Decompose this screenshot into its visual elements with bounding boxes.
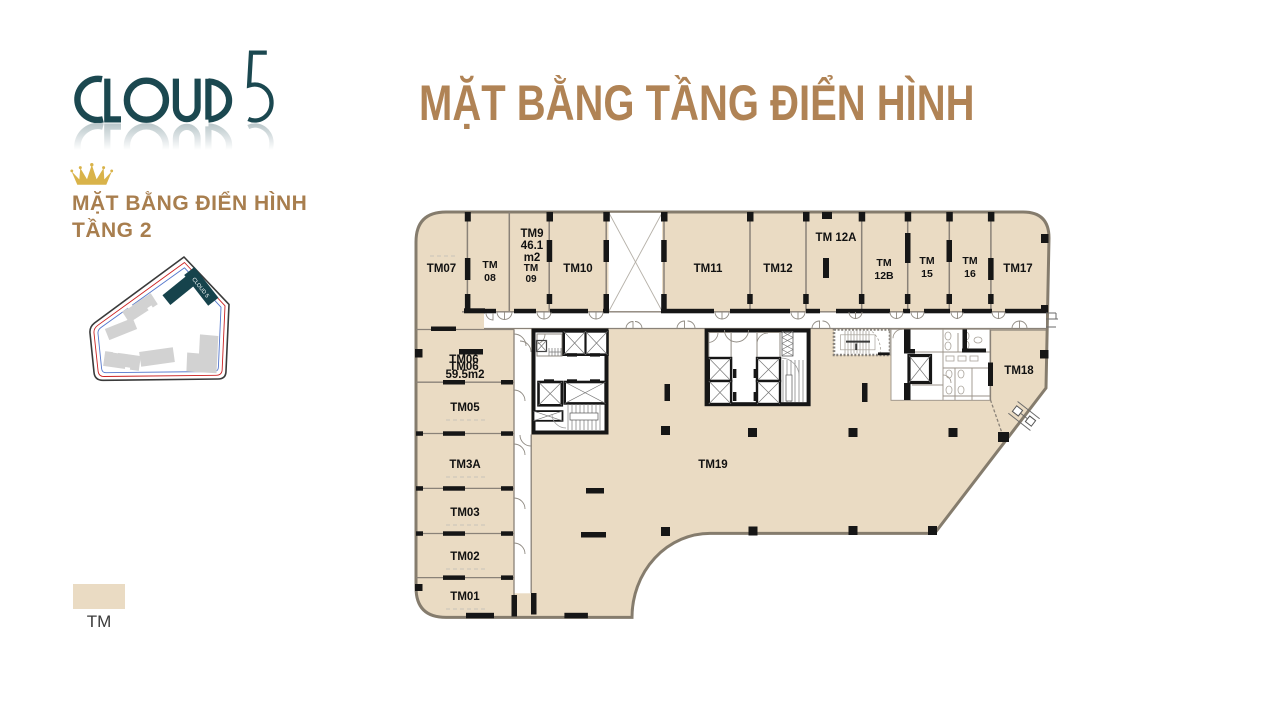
svg-text:TM: TM — [919, 255, 934, 267]
svg-text:TM10: TM10 — [563, 263, 592, 275]
svg-text:TM3A: TM3A — [449, 459, 480, 471]
svg-text:TM 12A: TM 12A — [816, 232, 857, 244]
svg-text:16: 16 — [964, 268, 976, 280]
svg-text:TM17: TM17 — [1003, 263, 1032, 275]
svg-text:TM: TM — [524, 263, 538, 274]
svg-text:12B: 12B — [874, 270, 894, 282]
svg-text:TM: TM — [876, 257, 891, 269]
svg-text:59.5m2: 59.5m2 — [445, 369, 484, 381]
svg-text:TM19: TM19 — [698, 459, 727, 471]
svg-text:TM12: TM12 — [763, 263, 792, 275]
svg-text:TM07: TM07 — [427, 263, 456, 275]
svg-text:46.1: 46.1 — [521, 240, 544, 252]
svg-text:TM: TM — [482, 259, 497, 271]
svg-text:TM01: TM01 — [450, 591, 480, 603]
svg-text:TM11: TM11 — [694, 263, 723, 275]
svg-text:TM03: TM03 — [450, 507, 479, 519]
svg-text:08: 08 — [484, 272, 496, 284]
svg-text:09: 09 — [525, 274, 537, 285]
svg-text:15: 15 — [921, 268, 933, 280]
svg-text:TM: TM — [962, 255, 977, 267]
svg-text:TM02: TM02 — [450, 551, 479, 563]
svg-text:TM18: TM18 — [1004, 365, 1034, 377]
svg-text:TM9: TM9 — [521, 228, 544, 240]
svg-text:TM05: TM05 — [450, 402, 480, 414]
